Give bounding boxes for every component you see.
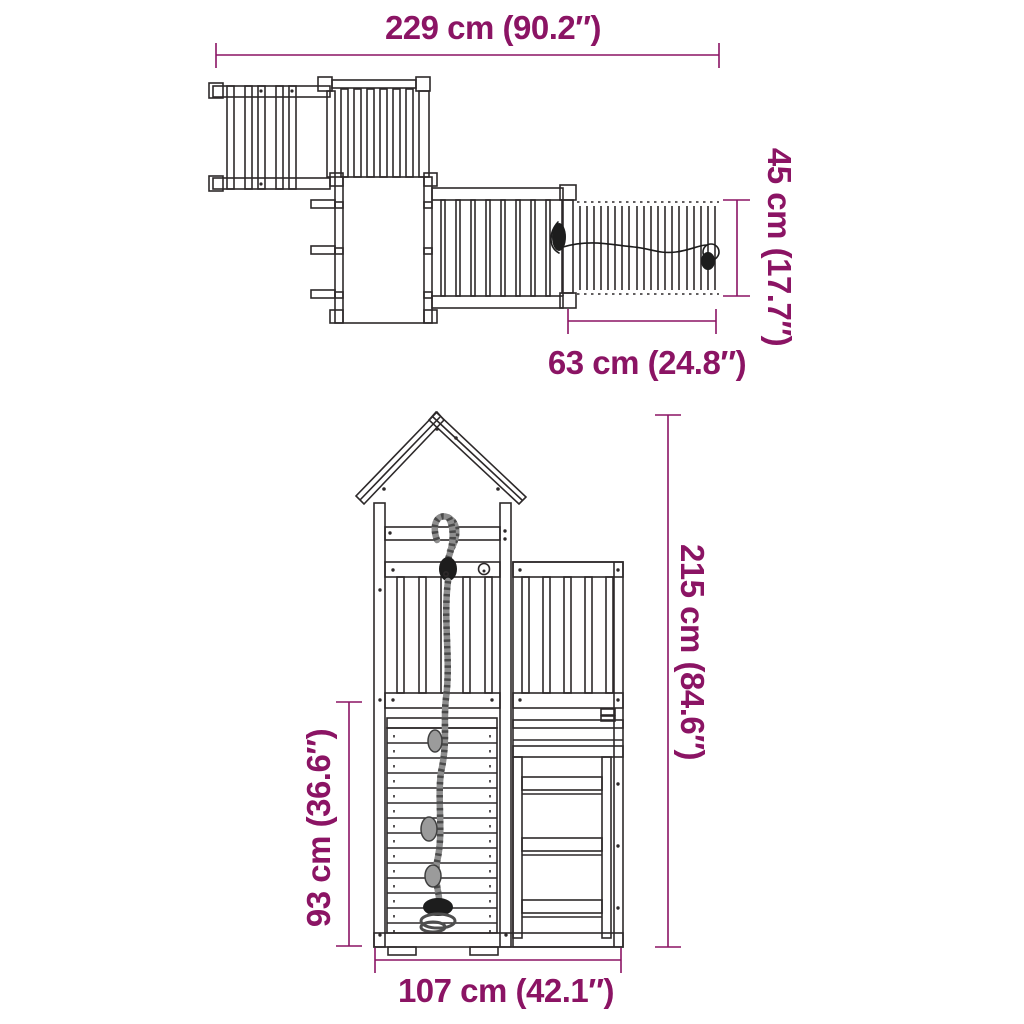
dim-label-bridge-length: 63 cm (24.8″): [548, 344, 746, 382]
top-view: [209, 43, 750, 334]
front-view-tower-balustrade: [385, 562, 500, 708]
top-view-side-platform: [432, 188, 563, 308]
dim-label-total-height: 215 cm (84.6″): [673, 544, 711, 760]
dim-label-bridge-depth: 45 cm (17.7″): [760, 148, 798, 346]
top-view-bridge: [577, 202, 719, 294]
front-view-annex: [513, 562, 623, 947]
front-view: [336, 412, 681, 973]
dim-bridge-length: [568, 309, 716, 334]
top-view-main-platform: [311, 173, 437, 323]
diagram-canvas: 229 cm (90.2″) 45 cm (17.7″) 63 cm (24.8…: [0, 0, 1024, 1024]
dim-label-base-width: 107 cm (42.1″): [398, 972, 614, 1010]
dim-label-climbing-wall-height: 93 cm (36.6″): [300, 729, 338, 927]
dim-label-total-width: 229 cm (90.2″): [385, 9, 601, 47]
top-view-upper-platform: [318, 77, 430, 177]
front-view-base: [374, 933, 623, 955]
front-view-roof: [356, 412, 526, 504]
line-art: [0, 0, 1024, 1024]
top-view-ladder: [209, 83, 330, 191]
dim-climbing-wall-height: [336, 702, 362, 946]
dim-bridge-depth: [723, 200, 750, 296]
